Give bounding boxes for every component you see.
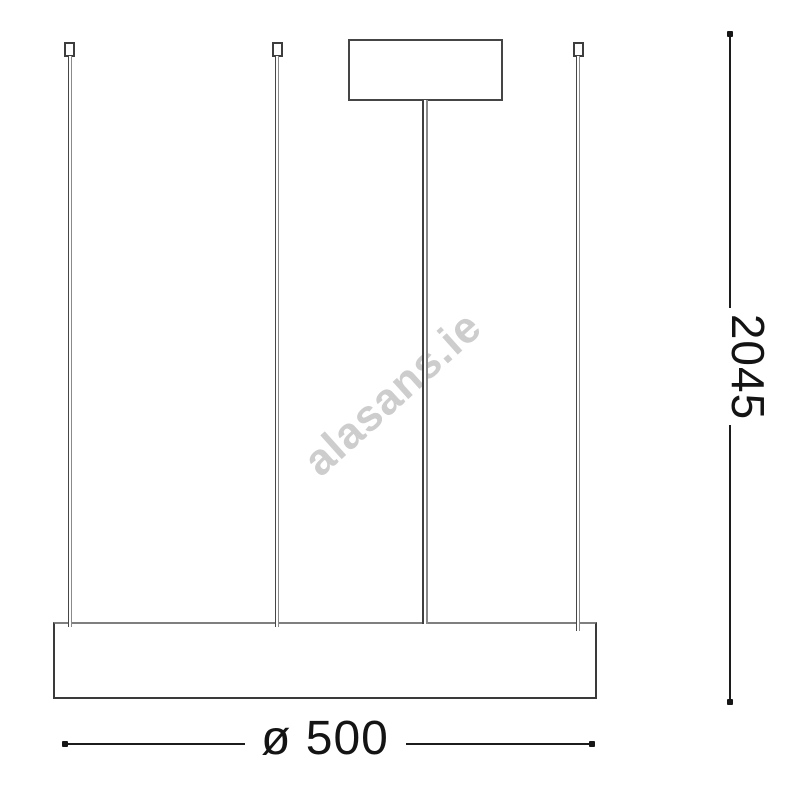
dimension-endpoint-dot — [62, 741, 68, 747]
pendant-lamp-technical-drawing: alasans.ie 2045 ø 500 — [0, 0, 796, 795]
dimension-endpoint-dot — [727, 31, 733, 37]
suspension-wire-left — [68, 56, 72, 627]
suspension-rod — [422, 100, 428, 624]
lamp-body — [53, 622, 597, 699]
diameter-dimension-label: ø 500 — [225, 714, 425, 764]
wire-ceiling-cap-middle — [272, 42, 283, 57]
wire-ceiling-cap-left — [64, 42, 75, 57]
dimension-endpoint-dot — [727, 699, 733, 705]
diameter-dimension-line-right — [406, 743, 592, 745]
height-dimension-label: 2045 — [725, 267, 771, 467]
wire-ceiling-cap-right — [573, 42, 584, 57]
suspension-wire-middle — [275, 56, 279, 627]
diameter-dimension-line-left — [65, 743, 245, 745]
suspension-wire-right — [576, 56, 580, 631]
dimension-endpoint-dot — [589, 741, 595, 747]
ceiling-canopy — [348, 39, 503, 101]
watermark-text: alasans.ie — [259, 270, 528, 518]
